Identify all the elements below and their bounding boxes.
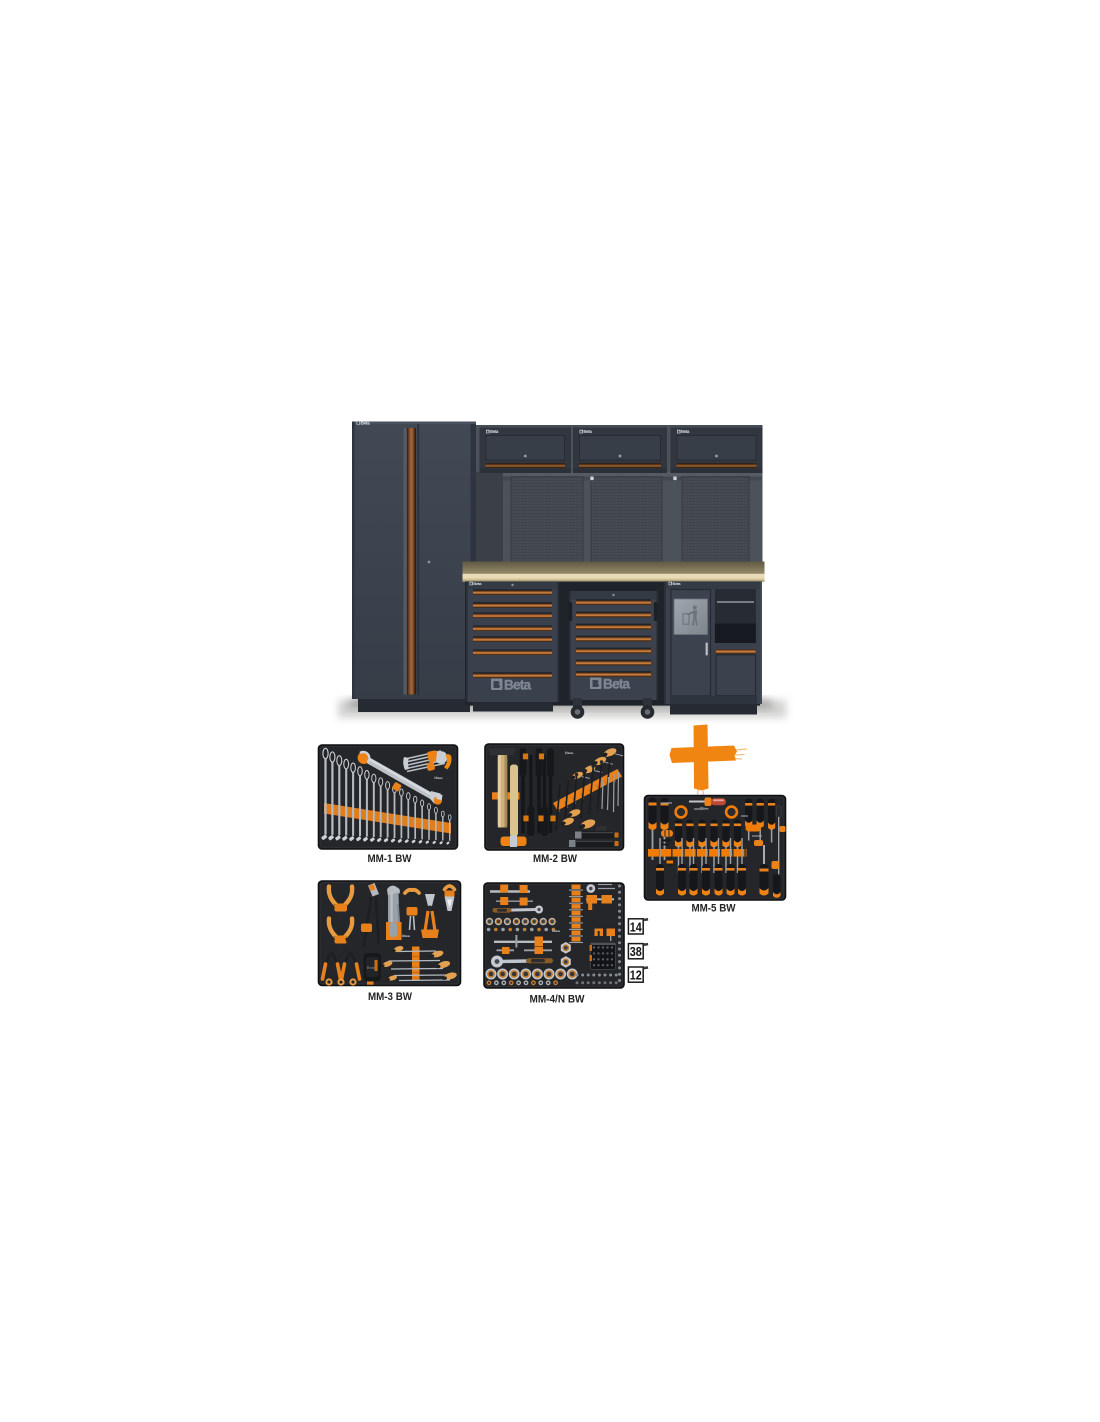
svg-text:MM-4/N BW: MM-4/N BW — [530, 994, 585, 1006]
svg-text:38: 38 — [630, 945, 642, 959]
svg-text:14: 14 — [630, 920, 642, 934]
svg-text:Beta: Beta — [367, 966, 376, 970]
svg-text:MM-1 BW: MM-1 BW — [368, 853, 412, 865]
svg-text:12: 12 — [630, 969, 642, 983]
svg-text:MM-3 BW: MM-3 BW — [368, 991, 412, 1003]
svg-text:MM-2 BW: MM-2 BW — [533, 853, 577, 865]
svg-text:MM-5 BW: MM-5 BW — [692, 903, 736, 915]
